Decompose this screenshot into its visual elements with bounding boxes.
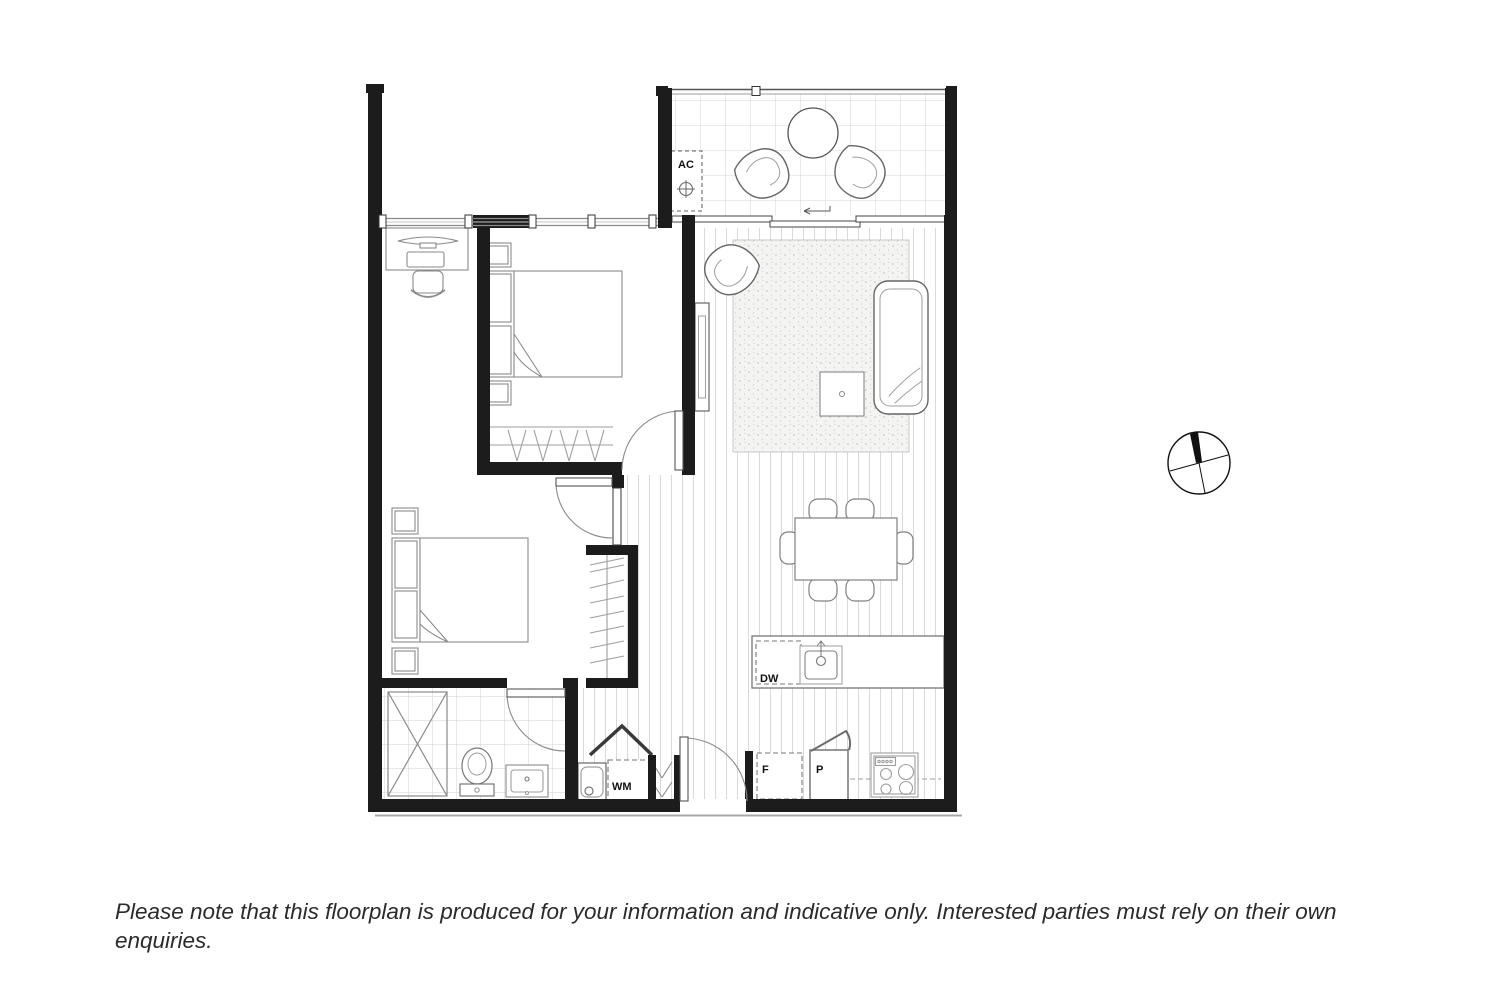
desk-chair	[411, 271, 445, 297]
wall-left	[368, 85, 382, 812]
island-bench	[752, 636, 944, 688]
ac-label: AC	[678, 159, 694, 171]
wall-right	[944, 215, 957, 812]
door-bedroom-2	[556, 478, 612, 538]
kitchen-sink	[800, 641, 842, 684]
balustrade	[660, 87, 953, 96]
coffee-table	[820, 372, 864, 416]
ac-unit: AC	[671, 151, 702, 211]
bedroom-1	[486, 243, 622, 461]
wall-bathroom-top	[382, 678, 507, 688]
tv-unit	[695, 303, 709, 411]
wall-bottom-right	[746, 799, 957, 812]
pantry-label: P	[816, 764, 823, 776]
compass-icon	[1168, 432, 1230, 494]
fridge-label: F	[762, 764, 769, 776]
wall-nib	[613, 488, 621, 545]
dining-chair	[809, 578, 837, 601]
door-bedroom-1	[622, 411, 683, 470]
balcony-table	[788, 108, 838, 158]
compass-north-arm	[1190, 432, 1202, 463]
laundry-tub	[578, 763, 606, 803]
bed-2	[392, 508, 528, 674]
sofa	[874, 281, 928, 414]
wall-balcony-right	[945, 88, 957, 218]
wall-bath-laundry	[565, 688, 578, 799]
floorplan-page: DW F P	[0, 0, 1500, 1000]
washing-machine-label: WM	[612, 781, 632, 793]
cooktop	[871, 753, 918, 797]
bed-1	[486, 243, 622, 405]
dining-chair	[846, 578, 874, 601]
study-nook	[386, 228, 468, 297]
wardrobe-1	[490, 427, 613, 461]
disclaimer-text: Please note that this floorplan is produ…	[115, 897, 1433, 956]
dining-table	[795, 518, 897, 580]
wall-bed1-right	[682, 215, 695, 475]
wall-bed1-left	[477, 215, 490, 475]
dishwasher-label: DW	[760, 673, 779, 685]
toilet	[460, 748, 494, 796]
wall-balcony-left	[658, 88, 672, 228]
wall-robe2	[628, 545, 638, 688]
keyboard	[407, 252, 444, 267]
floorplan-svg: DW F P	[0, 0, 1500, 1000]
fridge	[757, 753, 802, 799]
wall-bed1-bottom	[477, 462, 622, 475]
vanity	[506, 765, 548, 797]
wall-bottom-left	[368, 799, 680, 812]
washing-machine	[608, 760, 650, 800]
wardrobe-2	[590, 555, 624, 678]
